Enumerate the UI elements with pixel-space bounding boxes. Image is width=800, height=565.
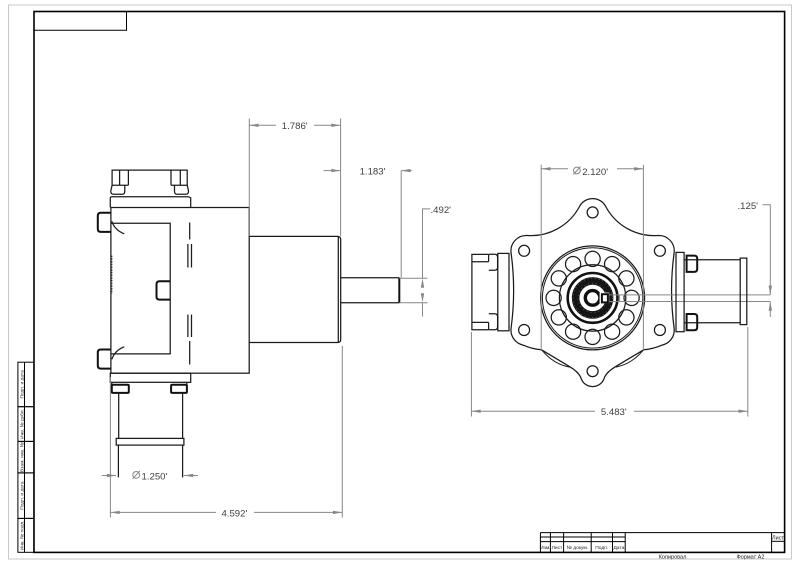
svg-text:4.592': 4.592'	[221, 508, 247, 519]
svg-text:Лист: Лист	[552, 545, 563, 551]
svg-text:№ докум.: № докум.	[567, 545, 589, 551]
svg-text:Изм.: Изм.	[540, 545, 550, 551]
svg-text:Копировал: Копировал	[659, 555, 687, 561]
svg-text:1.786': 1.786'	[282, 121, 308, 132]
svg-text:Инв. № подл.: Инв. № подл.	[19, 520, 25, 550]
svg-text:2.120': 2.120'	[582, 167, 608, 178]
svg-text:Лист: Лист	[772, 536, 784, 542]
svg-text:.492': .492'	[431, 205, 452, 216]
svg-text:Подп. и дата: Подп. и дата	[19, 370, 25, 399]
svg-text:1.183': 1.183'	[360, 167, 386, 178]
svg-text:Взам. инв. №: Взам. инв. №	[19, 442, 25, 472]
svg-text:Инв. № дубл.: Инв. № дубл.	[19, 409, 25, 439]
svg-text:1.250': 1.250'	[142, 471, 168, 482]
svg-text:Подп.: Подп.	[595, 545, 608, 551]
svg-text:5.483': 5.483'	[601, 407, 627, 418]
svg-text:Дата: Дата	[613, 545, 624, 551]
svg-text:Подп. и дата: Подп. и дата	[19, 481, 25, 510]
svg-text:Формат А2: Формат А2	[737, 555, 765, 561]
svg-text:.125': .125'	[738, 201, 759, 212]
